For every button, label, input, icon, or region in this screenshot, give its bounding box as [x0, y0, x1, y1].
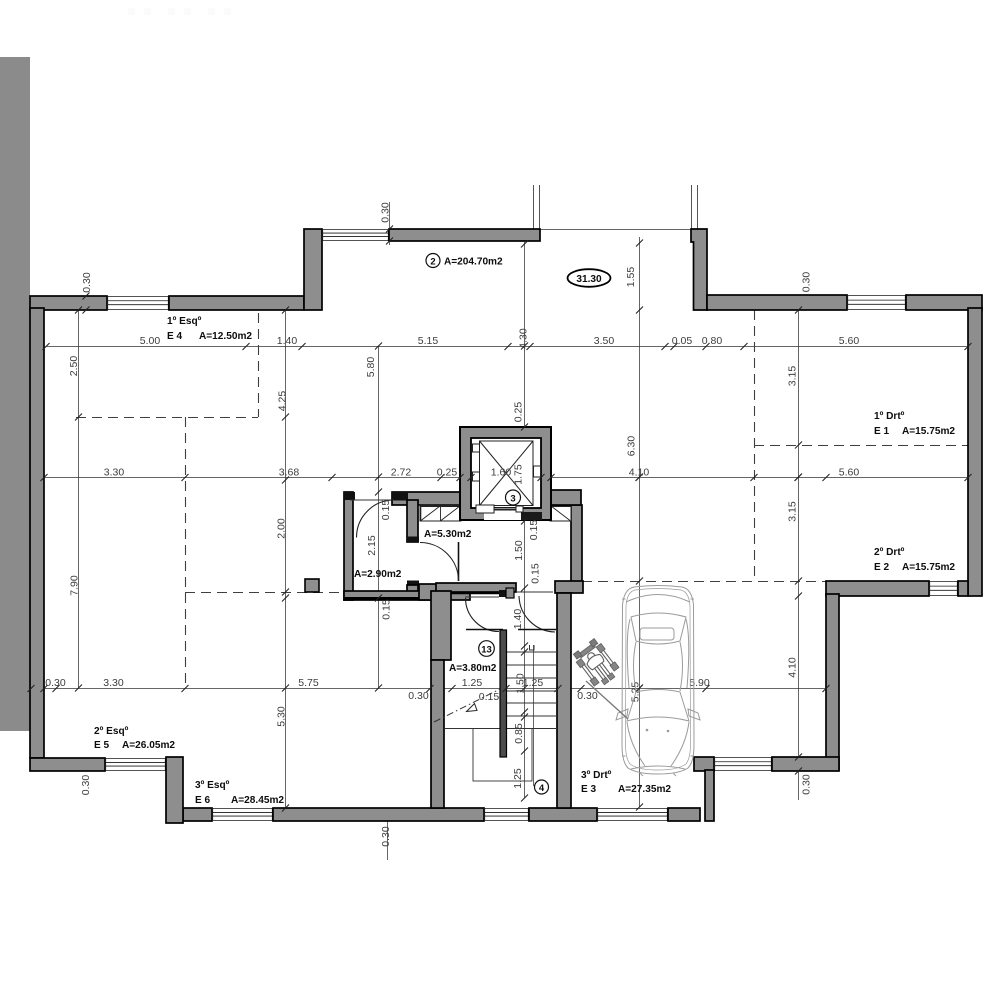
svg-text:2.50: 2.50	[68, 356, 80, 377]
svg-text:5.60: 5.60	[839, 467, 860, 479]
svg-text:0.25: 0.25	[437, 467, 458, 479]
svg-text:4: 4	[539, 783, 545, 794]
svg-text:E 4: E 4	[167, 331, 183, 342]
svg-text:6.30: 6.30	[626, 436, 638, 457]
svg-text:1.50: 1.50	[513, 540, 525, 561]
svg-text:2º Drtº: 2º Drtº	[874, 547, 905, 558]
svg-text:4.30: 4.30	[518, 328, 530, 349]
svg-text:31.30: 31.30	[576, 274, 602, 285]
svg-text:E 1: E 1	[874, 426, 890, 437]
svg-text:0.30: 0.30	[801, 774, 813, 795]
svg-text:1.40: 1.40	[277, 335, 298, 347]
svg-text:3º Drtº: 3º Drtº	[581, 770, 612, 781]
svg-text:0.80: 0.80	[702, 335, 723, 347]
svg-text:1º Esqº: 1º Esqº	[167, 316, 202, 327]
svg-text:0.30: 0.30	[45, 677, 66, 689]
svg-text:3.15: 3.15	[787, 366, 799, 387]
svg-text:1.25: 1.25	[462, 677, 483, 689]
svg-text:A=2.90m2: A=2.90m2	[354, 569, 402, 580]
svg-text:A=3.80m2: A=3.80m2	[449, 663, 497, 674]
svg-text:3.30: 3.30	[104, 467, 125, 479]
svg-text:5.25: 5.25	[630, 682, 642, 703]
svg-text:4.10: 4.10	[787, 657, 799, 678]
svg-text:4.10: 4.10	[629, 467, 650, 479]
svg-text:3.15: 3.15	[787, 501, 799, 522]
svg-text:5.30: 5.30	[276, 706, 288, 727]
svg-text:E 3: E 3	[581, 784, 597, 795]
svg-text:5.90: 5.90	[689, 677, 710, 689]
svg-text:A=27.35m2: A=27.35m2	[618, 784, 671, 795]
svg-text:1.75: 1.75	[513, 464, 525, 485]
svg-text:1º Drtº: 1º Drtº	[874, 411, 905, 422]
svg-text:5.60: 5.60	[839, 335, 860, 347]
svg-text:5.80: 5.80	[365, 357, 377, 378]
svg-text:A=204.70m2: A=204.70m2	[444, 257, 503, 268]
svg-text:0.15: 0.15	[380, 500, 392, 521]
svg-text:0.30: 0.30	[408, 690, 429, 702]
svg-text:5.00: 5.00	[140, 335, 161, 347]
svg-text:0.30: 0.30	[81, 272, 93, 293]
svg-text:A=5.30m2: A=5.30m2	[424, 529, 472, 540]
svg-text:1.25: 1.25	[512, 768, 524, 789]
svg-text:13: 13	[481, 645, 492, 656]
svg-text:3: 3	[510, 494, 515, 505]
svg-text:A=15.75m2: A=15.75m2	[902, 562, 955, 573]
svg-text:0.15: 0.15	[528, 520, 540, 541]
svg-text:5.75: 5.75	[298, 677, 319, 689]
svg-text:0.15: 0.15	[530, 563, 542, 584]
svg-text:0.30: 0.30	[80, 775, 92, 796]
svg-text:E 6: E 6	[195, 795, 211, 806]
svg-text:1.50: 1.50	[515, 673, 527, 694]
svg-text:1.60: 1.60	[491, 467, 512, 479]
svg-text:5.15: 5.15	[418, 335, 439, 347]
svg-text:A=12.50m2: A=12.50m2	[199, 331, 252, 342]
svg-text:3.50: 3.50	[594, 335, 615, 347]
svg-text:1.40: 1.40	[512, 609, 524, 630]
svg-text:0.30: 0.30	[380, 826, 392, 847]
svg-text:A=26.05m2: A=26.05m2	[122, 740, 175, 751]
svg-text:E 5: E 5	[94, 740, 110, 751]
svg-text:2: 2	[430, 257, 435, 268]
svg-text:4.25: 4.25	[277, 391, 289, 412]
svg-text:0.30: 0.30	[577, 690, 598, 702]
svg-text:2.00: 2.00	[276, 518, 288, 539]
svg-text:2.15: 2.15	[366, 535, 378, 556]
svg-text:E 2: E 2	[874, 562, 890, 573]
svg-text:A=28.45m2: A=28.45m2	[231, 795, 284, 806]
svg-text:3.68: 3.68	[279, 467, 300, 479]
svg-text:3º Esqº: 3º Esqº	[195, 780, 230, 791]
svg-text:2º Esqº: 2º Esqº	[94, 726, 129, 737]
svg-text:0.30: 0.30	[801, 272, 813, 293]
svg-text:0.15: 0.15	[479, 691, 500, 703]
svg-text:0.25: 0.25	[513, 402, 525, 423]
svg-text:0.30: 0.30	[380, 202, 392, 223]
svg-text:3.30: 3.30	[103, 677, 124, 689]
svg-text:0.15: 0.15	[381, 599, 393, 620]
svg-text:7.90: 7.90	[69, 575, 81, 596]
svg-text:0.85: 0.85	[513, 723, 525, 744]
svg-text:A=15.75m2: A=15.75m2	[902, 426, 955, 437]
svg-text:1.55: 1.55	[625, 267, 637, 288]
svg-text:2.72: 2.72	[391, 467, 412, 479]
svg-text:0.05: 0.05	[672, 335, 693, 347]
